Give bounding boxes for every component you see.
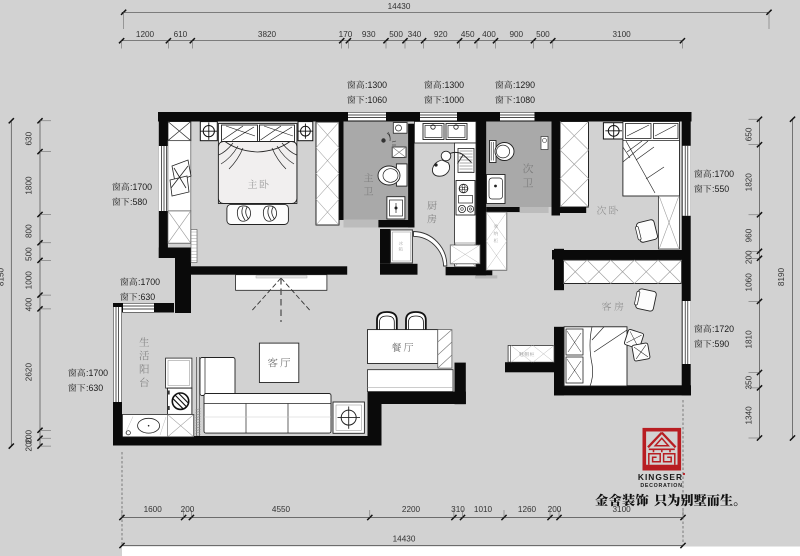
svg-text:170: 170	[339, 30, 353, 39]
svg-text:3100: 3100	[612, 30, 631, 39]
svg-text:1810: 1810	[745, 330, 754, 349]
svg-text::1060: :1060	[365, 95, 387, 105]
svg-text:200: 200	[181, 505, 195, 514]
svg-text:1260: 1260	[518, 505, 537, 514]
svg-text::1080: :1080	[513, 95, 535, 105]
svg-text:310: 310	[451, 505, 465, 514]
svg-text:400: 400	[482, 30, 496, 39]
svg-text::1700: :1700	[86, 368, 108, 378]
svg-text:1200: 1200	[136, 30, 155, 39]
svg-text:900: 900	[509, 30, 523, 39]
svg-text:8150: 8150	[0, 267, 6, 286]
svg-text::630: :630	[138, 292, 155, 302]
svg-text:DECORATION: DECORATION	[640, 483, 682, 489]
svg-text::1700: :1700	[130, 182, 152, 192]
svg-text::580: :580	[130, 197, 147, 207]
svg-text:930: 930	[362, 30, 376, 39]
svg-text::1300: :1300	[442, 80, 464, 90]
svg-text:960: 960	[745, 228, 754, 242]
svg-text:2620: 2620	[25, 363, 34, 382]
svg-text:340: 340	[408, 30, 422, 39]
svg-text:1000: 1000	[25, 271, 34, 290]
svg-text:610: 610	[174, 30, 188, 39]
svg-text::590: :590	[712, 339, 729, 349]
svg-text:500: 500	[25, 247, 34, 261]
svg-text::1700: :1700	[138, 277, 160, 287]
svg-text:500: 500	[389, 30, 403, 39]
svg-text::1000: :1000	[442, 95, 464, 105]
svg-text:650: 650	[745, 127, 754, 141]
svg-text:14430: 14430	[393, 535, 416, 544]
svg-text:1340: 1340	[745, 406, 754, 425]
svg-text:1600: 1600	[144, 505, 163, 514]
svg-text::1700: :1700	[712, 169, 734, 179]
svg-text:14430: 14430	[388, 2, 411, 11]
svg-text:400: 400	[25, 297, 34, 311]
svg-text:1010: 1010	[474, 505, 493, 514]
svg-text:1800: 1800	[25, 176, 34, 195]
svg-text:350: 350	[745, 375, 754, 389]
svg-text:200: 200	[25, 437, 34, 451]
svg-text::1290: :1290	[513, 80, 535, 90]
svg-text::630: :630	[86, 383, 103, 393]
svg-text:1060: 1060	[745, 273, 754, 292]
svg-text:KINGSER: KINGSER	[638, 472, 683, 482]
svg-text:200: 200	[745, 250, 754, 264]
svg-text:920: 920	[434, 30, 448, 39]
svg-text:630: 630	[25, 131, 34, 145]
svg-text:2200: 2200	[402, 505, 421, 514]
svg-text::1300: :1300	[365, 80, 387, 90]
svg-text:1820: 1820	[745, 173, 754, 192]
svg-text:200: 200	[548, 505, 562, 514]
svg-text:500: 500	[536, 30, 550, 39]
svg-text:450: 450	[461, 30, 475, 39]
svg-text:800: 800	[25, 224, 34, 238]
svg-text:3820: 3820	[258, 30, 277, 39]
svg-text:4550: 4550	[272, 505, 291, 514]
svg-text::1720: :1720	[712, 324, 734, 334]
svg-text::550: :550	[712, 184, 729, 194]
svg-text:8190: 8190	[777, 267, 786, 286]
svg-text:3100: 3100	[612, 505, 631, 514]
